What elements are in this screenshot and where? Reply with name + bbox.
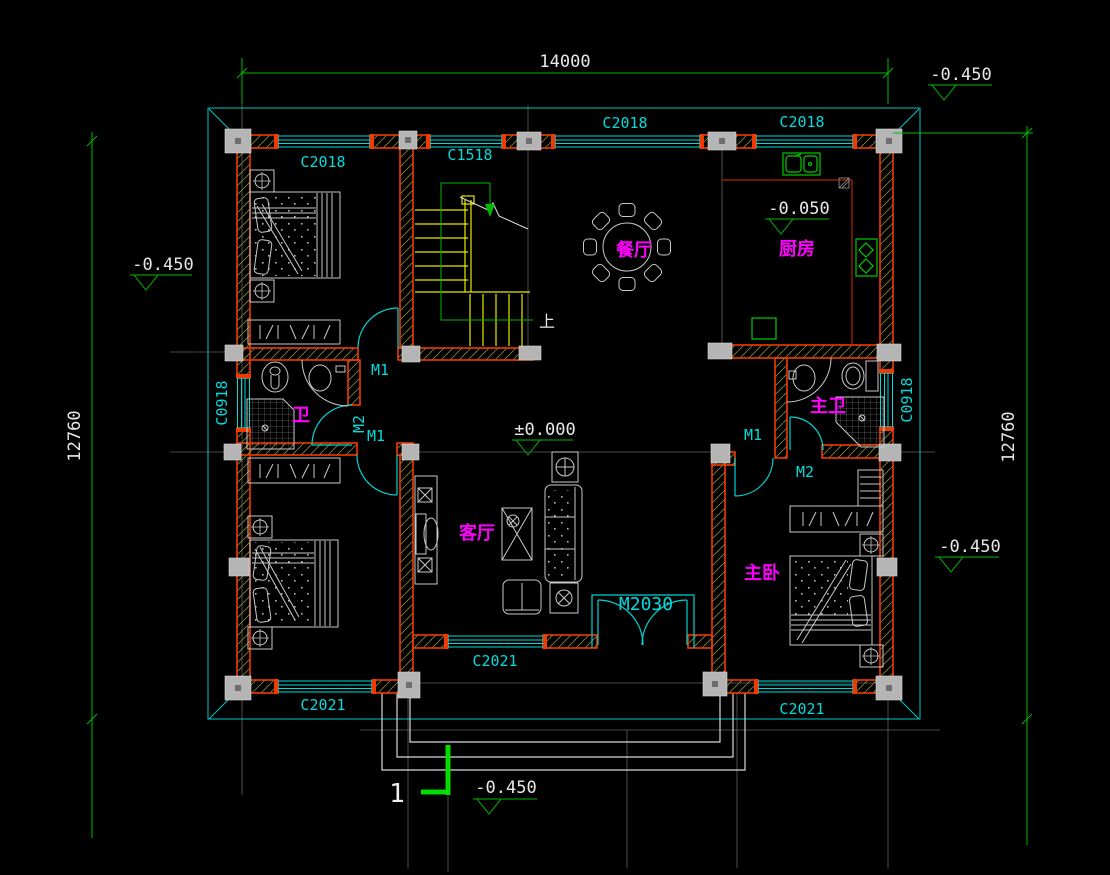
living-room-furniture <box>415 452 582 614</box>
door-m1-bedroom1 <box>358 308 398 348</box>
entrance-steps <box>382 693 745 770</box>
label-room-dining: 餐厅 <box>615 239 652 261</box>
label-door: M1 <box>744 426 762 444</box>
elevation-kitchen: -0.050 <box>765 199 830 234</box>
shower <box>247 399 294 449</box>
label-door: M2 <box>350 415 368 433</box>
svg-text:-0.450: -0.450 <box>939 537 1000 557</box>
floor-plan-canvas[interactable]: 14000 12760 12760 -0.450 -0.450 -0.450 -… <box>0 0 1110 875</box>
label-door: M1 <box>371 361 389 379</box>
bedroom1-furniture <box>248 170 340 344</box>
kitchen-cabinet <box>752 318 776 339</box>
dim-left-value: 12760 <box>65 410 85 461</box>
elevation-bottom: -0.450 <box>473 778 537 814</box>
label-window: C0918 <box>898 377 916 422</box>
elevation-top-right: -0.450 <box>928 65 992 100</box>
master-bedroom-furniture <box>790 470 883 667</box>
elevation-right: -0.450 <box>935 537 1001 572</box>
window-c2021-bedroom2 <box>274 679 376 694</box>
kitchen-stove <box>856 239 877 276</box>
cad-viewport[interactable]: 14000 12760 12760 -0.450 -0.450 -0.450 -… <box>0 0 1110 875</box>
staircase <box>415 183 533 346</box>
window-c2021-living <box>444 634 547 649</box>
label-door: M1 <box>367 427 385 445</box>
window-c2021-master <box>754 679 857 694</box>
washbasin <box>309 365 331 391</box>
label-window: C2018 <box>602 114 647 132</box>
elevation-left: -0.450 <box>130 255 194 290</box>
section-marker: 1 <box>389 745 450 809</box>
label-room-master-bathroom: 主卫 <box>810 395 846 417</box>
svg-text:-0.050: -0.050 <box>768 199 829 219</box>
door-m1-bedroom2 <box>357 455 397 495</box>
dimension-left: 12760 <box>65 132 97 838</box>
kitchen-sink <box>783 153 820 175</box>
door-m2-master-bath <box>790 417 823 450</box>
label-window: C2021 <box>472 652 517 670</box>
window-c2018-dining <box>551 134 704 149</box>
dim-top-value: 14000 <box>539 52 590 72</box>
svg-text:-0.450: -0.450 <box>132 255 193 275</box>
doors <box>312 308 823 648</box>
window-c2018-bedroom <box>274 134 374 149</box>
svg-text:-0.450: -0.450 <box>475 778 536 798</box>
label-room-bathroom: 卫 <box>292 405 310 426</box>
label-window: C2021 <box>300 696 345 714</box>
door-m1-master <box>735 458 773 496</box>
elevation-center: ±0.000 <box>512 420 576 455</box>
svg-text:±0.000: ±0.000 <box>514 420 575 440</box>
door-m2-bath <box>312 405 352 445</box>
label-room-master-bedroom: 主卧 <box>744 562 780 584</box>
svg-text:-0.450: -0.450 <box>930 65 991 85</box>
label-window: C2018 <box>779 113 824 131</box>
label-window: C1518 <box>447 146 492 164</box>
section-number: 1 <box>389 779 405 809</box>
label-window: C0918 <box>213 380 231 425</box>
label-room-living: 客厅 <box>459 522 495 544</box>
dimension-right: 12760 <box>893 126 1033 845</box>
toilet-tank <box>866 361 878 391</box>
dimension-top: 14000 <box>237 52 893 104</box>
dim-right-value: 12760 <box>999 411 1019 462</box>
bedroom2-furniture <box>248 458 340 649</box>
window-c2018-kitchen <box>752 134 857 149</box>
label-window: C2021 <box>779 700 824 718</box>
label-door: M2 <box>796 463 814 481</box>
label-stairs-up: 上 <box>539 312 555 331</box>
label-door: M2030 <box>619 594 673 615</box>
label-room-kitchen: 厨房 <box>779 238 815 260</box>
label-window: C2018 <box>300 153 345 171</box>
